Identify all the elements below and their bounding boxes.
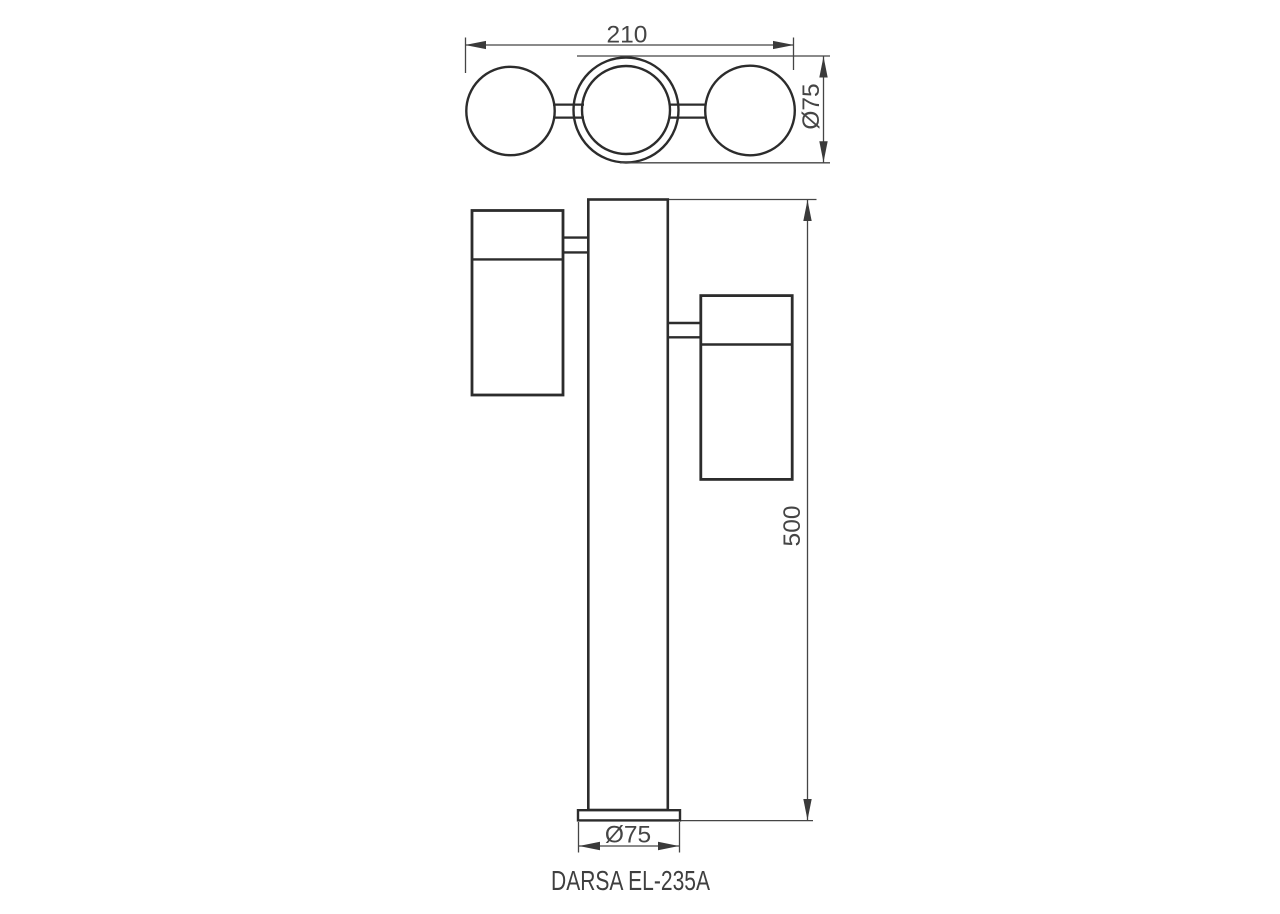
product-name-label: DARSA EL-235A: [551, 865, 710, 896]
dimension-overall-height: 500: [669, 200, 817, 821]
dimension-head-diameter-label: Ø75: [798, 83, 825, 129]
left-spotlight: [472, 211, 563, 396]
lamp-head-left-circle: [466, 67, 554, 155]
arrow-up-icon: [803, 200, 811, 221]
post-body: [588, 200, 668, 811]
right-spotlight-bracket: [664, 323, 704, 337]
dimension-base-diameter: Ø75: [579, 822, 680, 853]
technical-drawing: 210 Ø75: [0, 0, 1280, 914]
arrow-down-icon: [803, 799, 811, 820]
drawing-canvas: 210 Ø75: [0, 0, 1280, 914]
arrow-left-icon: [465, 41, 486, 49]
right-spotlight: [701, 296, 792, 480]
lamp-head-center-inner-circle: [582, 66, 670, 154]
dimension-height-label: 500: [779, 506, 806, 547]
head-link-right: [669, 105, 706, 118]
lamp-head-right-circle: [705, 66, 795, 156]
base-plate: [578, 810, 680, 820]
top-view: [466, 58, 795, 163]
head-link-left: [553, 105, 584, 118]
front-view: [472, 200, 792, 821]
dimension-base-diameter-label: Ø75: [605, 822, 651, 849]
arrow-right-icon: [773, 41, 794, 49]
dimension-head-diameter: Ø75: [577, 56, 830, 163]
arrow-down-icon: [819, 141, 827, 162]
arrow-up-icon: [819, 57, 827, 78]
dimension-width-label: 210: [607, 22, 648, 49]
arrow-left-icon: [579, 842, 600, 850]
lamp-head-center-outer-circle: [574, 58, 679, 163]
arrow-right-icon: [658, 842, 679, 850]
